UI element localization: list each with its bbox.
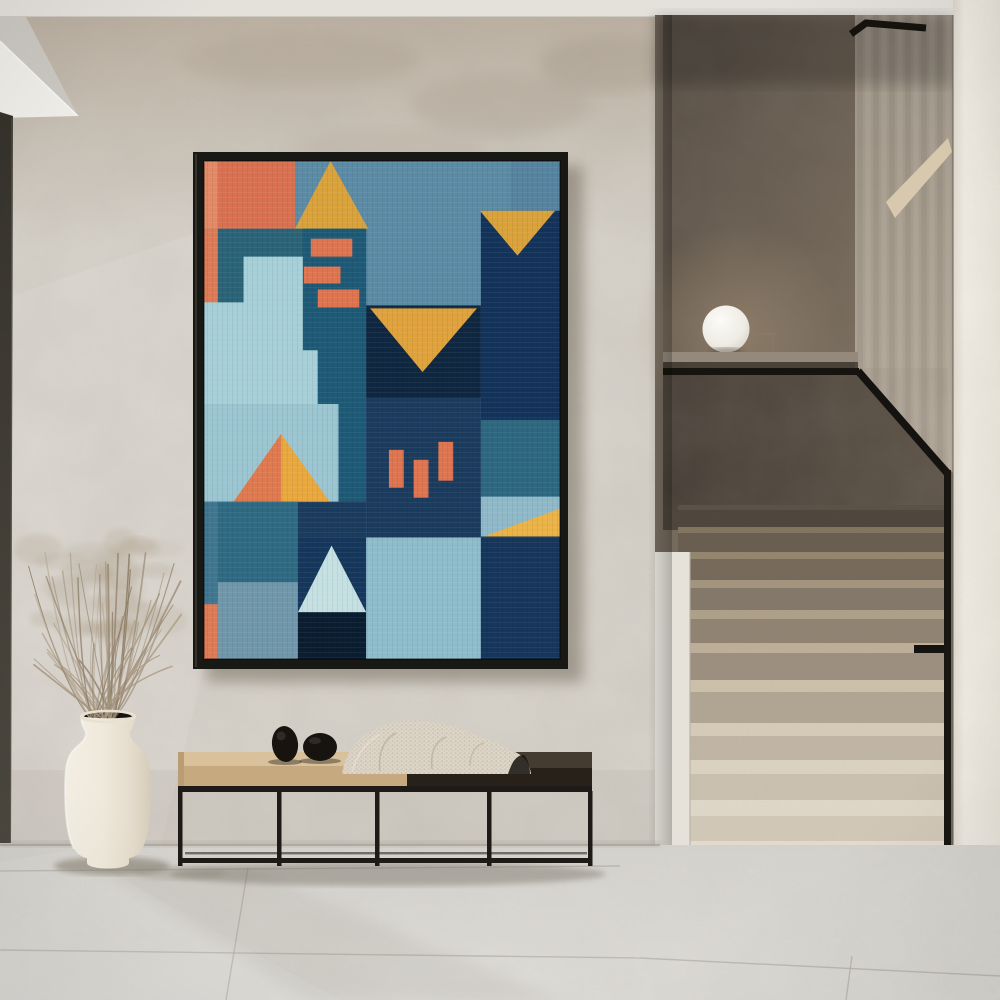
vignette xyxy=(0,0,1000,1000)
interior-photo xyxy=(0,0,1000,1000)
scene-svg xyxy=(0,0,1000,1000)
